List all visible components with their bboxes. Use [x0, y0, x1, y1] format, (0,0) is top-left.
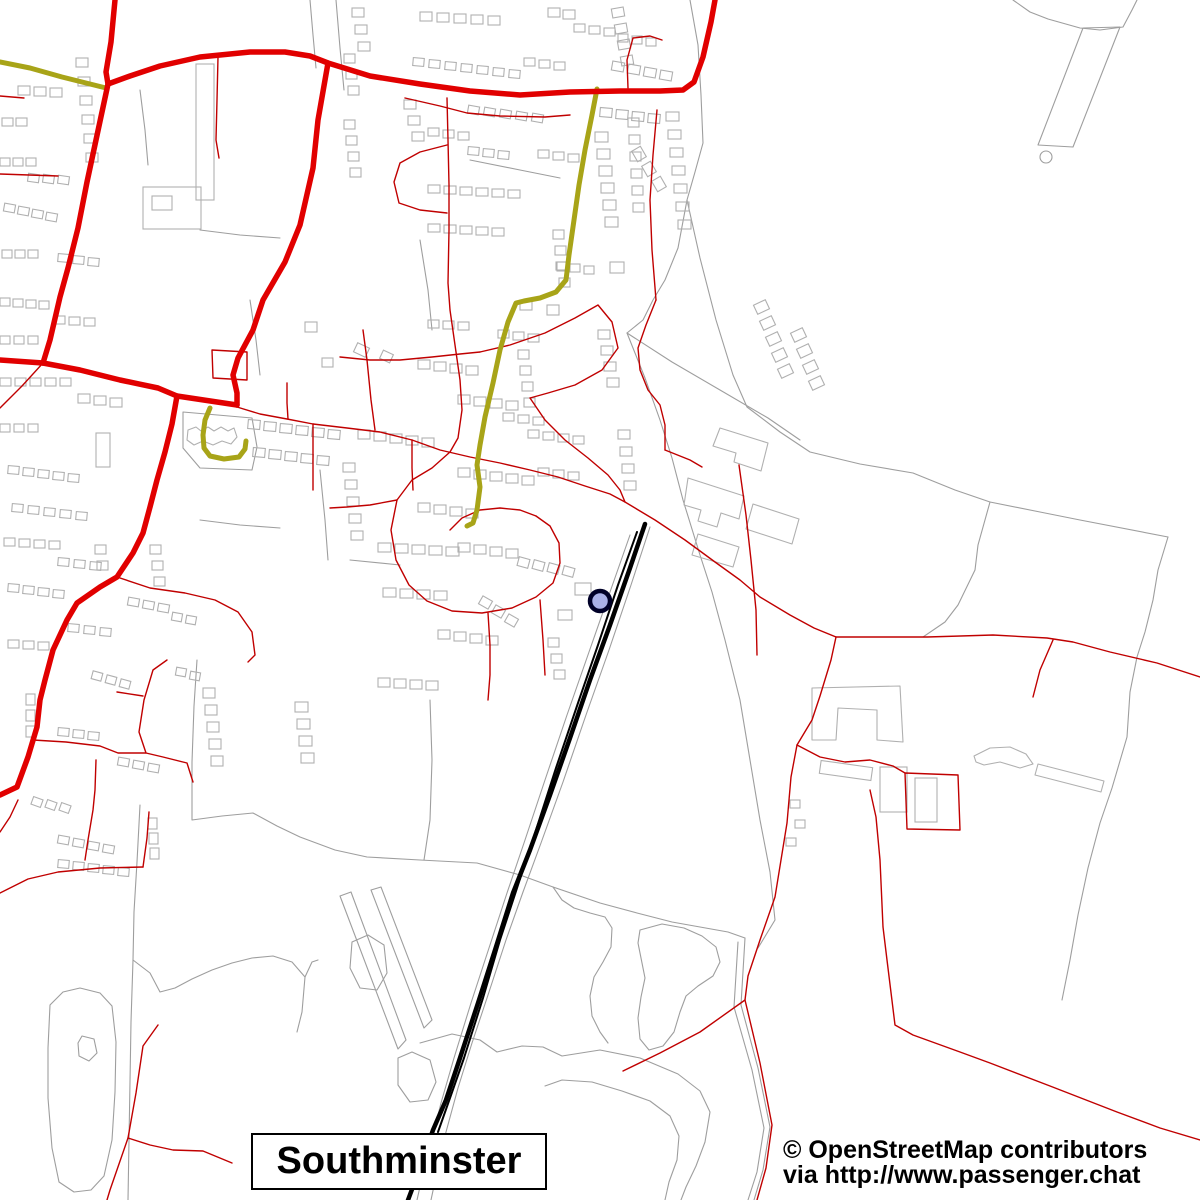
building [353, 343, 369, 358]
field-boundary [470, 160, 560, 178]
building [522, 382, 533, 391]
map-attribution: © OpenStreetMap contributors via http://… [783, 1138, 1183, 1188]
building [666, 112, 679, 121]
building [445, 62, 457, 71]
building [808, 376, 824, 391]
building [428, 128, 439, 136]
building [346, 136, 357, 145]
road-minor [650, 110, 657, 300]
building [524, 58, 535, 66]
building [458, 543, 470, 552]
building [444, 186, 456, 194]
building [60, 510, 72, 519]
building [74, 560, 86, 569]
road-minor [623, 1000, 745, 1071]
building [630, 152, 641, 161]
road-minor [540, 600, 545, 675]
building [506, 474, 518, 483]
road-minor [143, 812, 149, 867]
building [450, 507, 462, 516]
road-minor [745, 637, 836, 1200]
building [543, 432, 554, 440]
field-boundary [741, 938, 770, 1200]
building [492, 189, 504, 197]
building [426, 681, 438, 690]
building [59, 803, 71, 814]
building [152, 196, 172, 210]
building [352, 8, 364, 17]
building [503, 413, 514, 421]
building [14, 424, 24, 432]
building [412, 132, 424, 141]
building [103, 866, 115, 875]
building [68, 474, 80, 483]
road-minor [391, 452, 560, 613]
building [19, 539, 30, 547]
building [28, 250, 38, 258]
road-major [0, 360, 43, 363]
building [69, 317, 80, 325]
building [568, 472, 579, 480]
road-track [0, 62, 106, 88]
building [347, 497, 359, 506]
building [45, 800, 57, 811]
building [547, 305, 559, 315]
building [23, 641, 34, 649]
building [506, 401, 518, 410]
building [771, 348, 787, 363]
building [58, 728, 70, 737]
building [34, 540, 45, 548]
building [203, 688, 215, 698]
building [678, 220, 691, 229]
building [759, 316, 775, 331]
building [380, 350, 394, 363]
building [646, 38, 656, 46]
building [468, 147, 480, 156]
building [60, 378, 71, 386]
building [504, 614, 518, 627]
field-boundary [305, 960, 318, 977]
building [611, 7, 624, 18]
building [528, 430, 539, 438]
attribution-line1: © OpenStreetMap contributors [783, 1138, 1183, 1163]
building [49, 541, 60, 549]
field-boundary [350, 560, 400, 565]
building [383, 588, 396, 597]
building [880, 767, 907, 812]
road-major [43, 84, 108, 363]
building [28, 424, 38, 432]
field-boundary [545, 1080, 679, 1200]
building [795, 820, 805, 828]
building [301, 753, 314, 763]
building [642, 161, 657, 176]
building [295, 702, 308, 712]
field-boundary [553, 887, 612, 1043]
building [471, 15, 483, 24]
building [44, 508, 56, 517]
building [562, 566, 575, 578]
building [486, 636, 498, 645]
road-minor [1033, 640, 1053, 697]
building [598, 330, 610, 339]
building [88, 732, 100, 741]
building [595, 132, 608, 142]
building [461, 64, 473, 73]
road-minor [797, 745, 905, 773]
field-boundary [923, 502, 990, 637]
building [478, 596, 492, 609]
field-boundary [133, 956, 305, 1032]
building [18, 86, 30, 95]
building [509, 70, 521, 79]
building [418, 360, 430, 369]
road-minor [216, 57, 219, 158]
building [458, 395, 470, 404]
building [607, 378, 619, 387]
building [539, 60, 550, 68]
building [812, 686, 903, 742]
building [34, 87, 46, 96]
building [575, 583, 591, 595]
building [629, 135, 640, 144]
building [26, 158, 36, 166]
building [297, 719, 310, 729]
road-minor [107, 1025, 158, 1200]
building [437, 13, 449, 22]
building [38, 588, 50, 597]
building [790, 800, 800, 808]
road-minor [530, 398, 625, 502]
building [434, 591, 447, 600]
field-boundary [200, 230, 280, 238]
field-boundary [140, 90, 148, 165]
building [790, 328, 806, 343]
field-polygon [1038, 27, 1120, 147]
building [551, 654, 562, 663]
building [299, 736, 312, 746]
building [672, 166, 685, 175]
building [429, 60, 441, 69]
building [600, 107, 613, 117]
building [348, 152, 359, 161]
building [428, 320, 439, 328]
building [506, 549, 518, 558]
building [96, 433, 110, 467]
road-minor [0, 800, 18, 832]
building [72, 838, 84, 848]
building [659, 70, 672, 81]
building [408, 116, 420, 125]
building [597, 149, 610, 159]
building [446, 547, 459, 556]
field-boundary [424, 700, 432, 860]
building [554, 62, 565, 70]
building [152, 561, 163, 570]
building [819, 760, 872, 780]
field-boundary [1013, 0, 1137, 30]
building [458, 468, 470, 477]
building [378, 678, 390, 687]
building [53, 590, 65, 599]
field-boundary [336, 0, 344, 90]
building [777, 364, 793, 379]
field-boundary [734, 942, 764, 1200]
building [460, 187, 472, 195]
building [603, 200, 616, 210]
building [548, 8, 560, 17]
field-polygon [371, 887, 432, 1028]
building [15, 250, 25, 258]
building [1035, 764, 1104, 792]
building [23, 586, 35, 595]
building [28, 336, 38, 344]
building [652, 176, 667, 191]
road-minor [394, 145, 447, 213]
building [16, 118, 27, 126]
building [553, 230, 564, 239]
building [786, 838, 796, 846]
building [280, 423, 293, 433]
building [196, 64, 214, 200]
road-minor [363, 330, 375, 430]
building [684, 478, 744, 527]
road-minor [0, 867, 143, 893]
building [532, 560, 545, 572]
map-stage: Southminster © OpenStreetMap contributor… [0, 0, 1200, 1200]
road-minor [128, 1138, 232, 1163]
building [499, 109, 511, 119]
building [490, 399, 502, 408]
building [395, 544, 408, 553]
building [45, 212, 57, 222]
building [84, 626, 96, 635]
building [31, 209, 43, 219]
building [631, 169, 642, 178]
road-minor [412, 440, 413, 490]
building [796, 344, 812, 359]
field-boundary [320, 470, 328, 560]
building [476, 227, 488, 235]
building [76, 58, 88, 67]
field-boundary [420, 240, 432, 330]
building [119, 679, 131, 689]
building [185, 615, 196, 625]
building [355, 25, 367, 34]
building [614, 23, 627, 34]
building [171, 612, 182, 622]
building [15, 378, 26, 386]
road-minor [739, 465, 757, 655]
building [38, 470, 50, 479]
building [412, 545, 425, 554]
map-canvas [0, 0, 1200, 1200]
building [8, 584, 20, 593]
field-polygon [48, 988, 116, 1192]
building [38, 642, 49, 650]
building [154, 577, 165, 586]
building [209, 739, 221, 749]
building [802, 360, 818, 375]
building [554, 670, 565, 679]
building [117, 757, 129, 767]
road-minor [139, 660, 193, 782]
building [0, 378, 11, 386]
building [118, 868, 130, 877]
road-major [43, 363, 237, 405]
building [605, 217, 618, 227]
building [450, 364, 462, 373]
building [82, 115, 94, 124]
building [348, 86, 359, 95]
building [147, 763, 159, 773]
building [2, 250, 12, 258]
building [322, 358, 333, 367]
building [429, 546, 442, 555]
building [30, 378, 41, 386]
building [404, 100, 416, 109]
building [26, 694, 35, 705]
building [538, 150, 549, 158]
road-minor [638, 300, 665, 450]
building [610, 262, 624, 273]
building [88, 258, 100, 267]
field-boundary [1062, 537, 1168, 1000]
building [94, 396, 106, 405]
road-minor [450, 508, 536, 530]
building [611, 61, 624, 72]
building [296, 425, 309, 435]
building [476, 188, 488, 196]
building [90, 562, 102, 571]
building [668, 130, 681, 139]
building [915, 778, 937, 822]
building [458, 132, 469, 140]
building [17, 206, 29, 216]
building [50, 88, 62, 97]
building [616, 109, 629, 119]
building [189, 671, 200, 681]
building [31, 797, 43, 808]
building [76, 512, 88, 521]
building [622, 464, 634, 473]
building [13, 158, 23, 166]
building [553, 152, 564, 160]
building [632, 146, 647, 161]
building [765, 332, 781, 347]
building [150, 545, 161, 554]
building [518, 415, 529, 423]
building [618, 430, 630, 439]
building [620, 447, 632, 456]
building [674, 184, 687, 193]
field-boundary [431, 527, 650, 1200]
road-minor [33, 740, 146, 753]
building [508, 190, 520, 198]
building [624, 481, 636, 490]
building [57, 175, 69, 184]
building [149, 833, 158, 844]
building [349, 514, 361, 523]
building [434, 505, 446, 514]
building [378, 543, 391, 552]
building [4, 538, 15, 546]
field-boundary [200, 520, 280, 528]
building [410, 680, 422, 689]
place-label-text: Southminster [277, 1140, 522, 1183]
building [207, 722, 219, 732]
building [632, 186, 643, 195]
building [26, 710, 35, 721]
building [974, 747, 1033, 768]
road-minor [870, 790, 1200, 1140]
building [438, 630, 450, 639]
building [0, 158, 10, 166]
field-circle [1040, 151, 1052, 163]
road-minor [0, 96, 24, 98]
field-boundary [627, 333, 800, 440]
building [80, 96, 92, 105]
building [39, 301, 49, 309]
building [26, 300, 36, 308]
building [8, 466, 20, 475]
building [73, 256, 85, 265]
building [555, 246, 566, 255]
building [13, 299, 23, 307]
building [563, 10, 575, 19]
building [344, 120, 355, 129]
building [573, 436, 584, 444]
building [68, 624, 80, 633]
building [648, 113, 661, 123]
building [418, 503, 430, 512]
building [428, 224, 440, 232]
road-minor [330, 500, 397, 508]
building [127, 597, 139, 607]
building [344, 54, 355, 63]
field-polygon [350, 935, 387, 990]
building [12, 504, 24, 513]
building [132, 760, 144, 770]
building [351, 531, 363, 540]
road-minor [340, 352, 480, 360]
building [142, 600, 154, 610]
building [175, 667, 186, 677]
building [413, 58, 425, 67]
building [358, 42, 370, 51]
building [498, 151, 510, 160]
building [599, 166, 612, 176]
building [520, 366, 531, 375]
building [633, 203, 644, 212]
building [518, 350, 529, 359]
field-polygon [340, 892, 406, 1049]
building [0, 336, 10, 344]
building [492, 228, 504, 236]
building [78, 394, 90, 403]
building [517, 557, 530, 569]
building [150, 848, 159, 859]
field-polygon [78, 1036, 97, 1061]
building [458, 322, 469, 330]
building [57, 835, 69, 845]
building [84, 318, 95, 326]
building [601, 346, 613, 355]
building [211, 756, 223, 766]
building [627, 64, 640, 75]
road-major [106, 0, 715, 95]
